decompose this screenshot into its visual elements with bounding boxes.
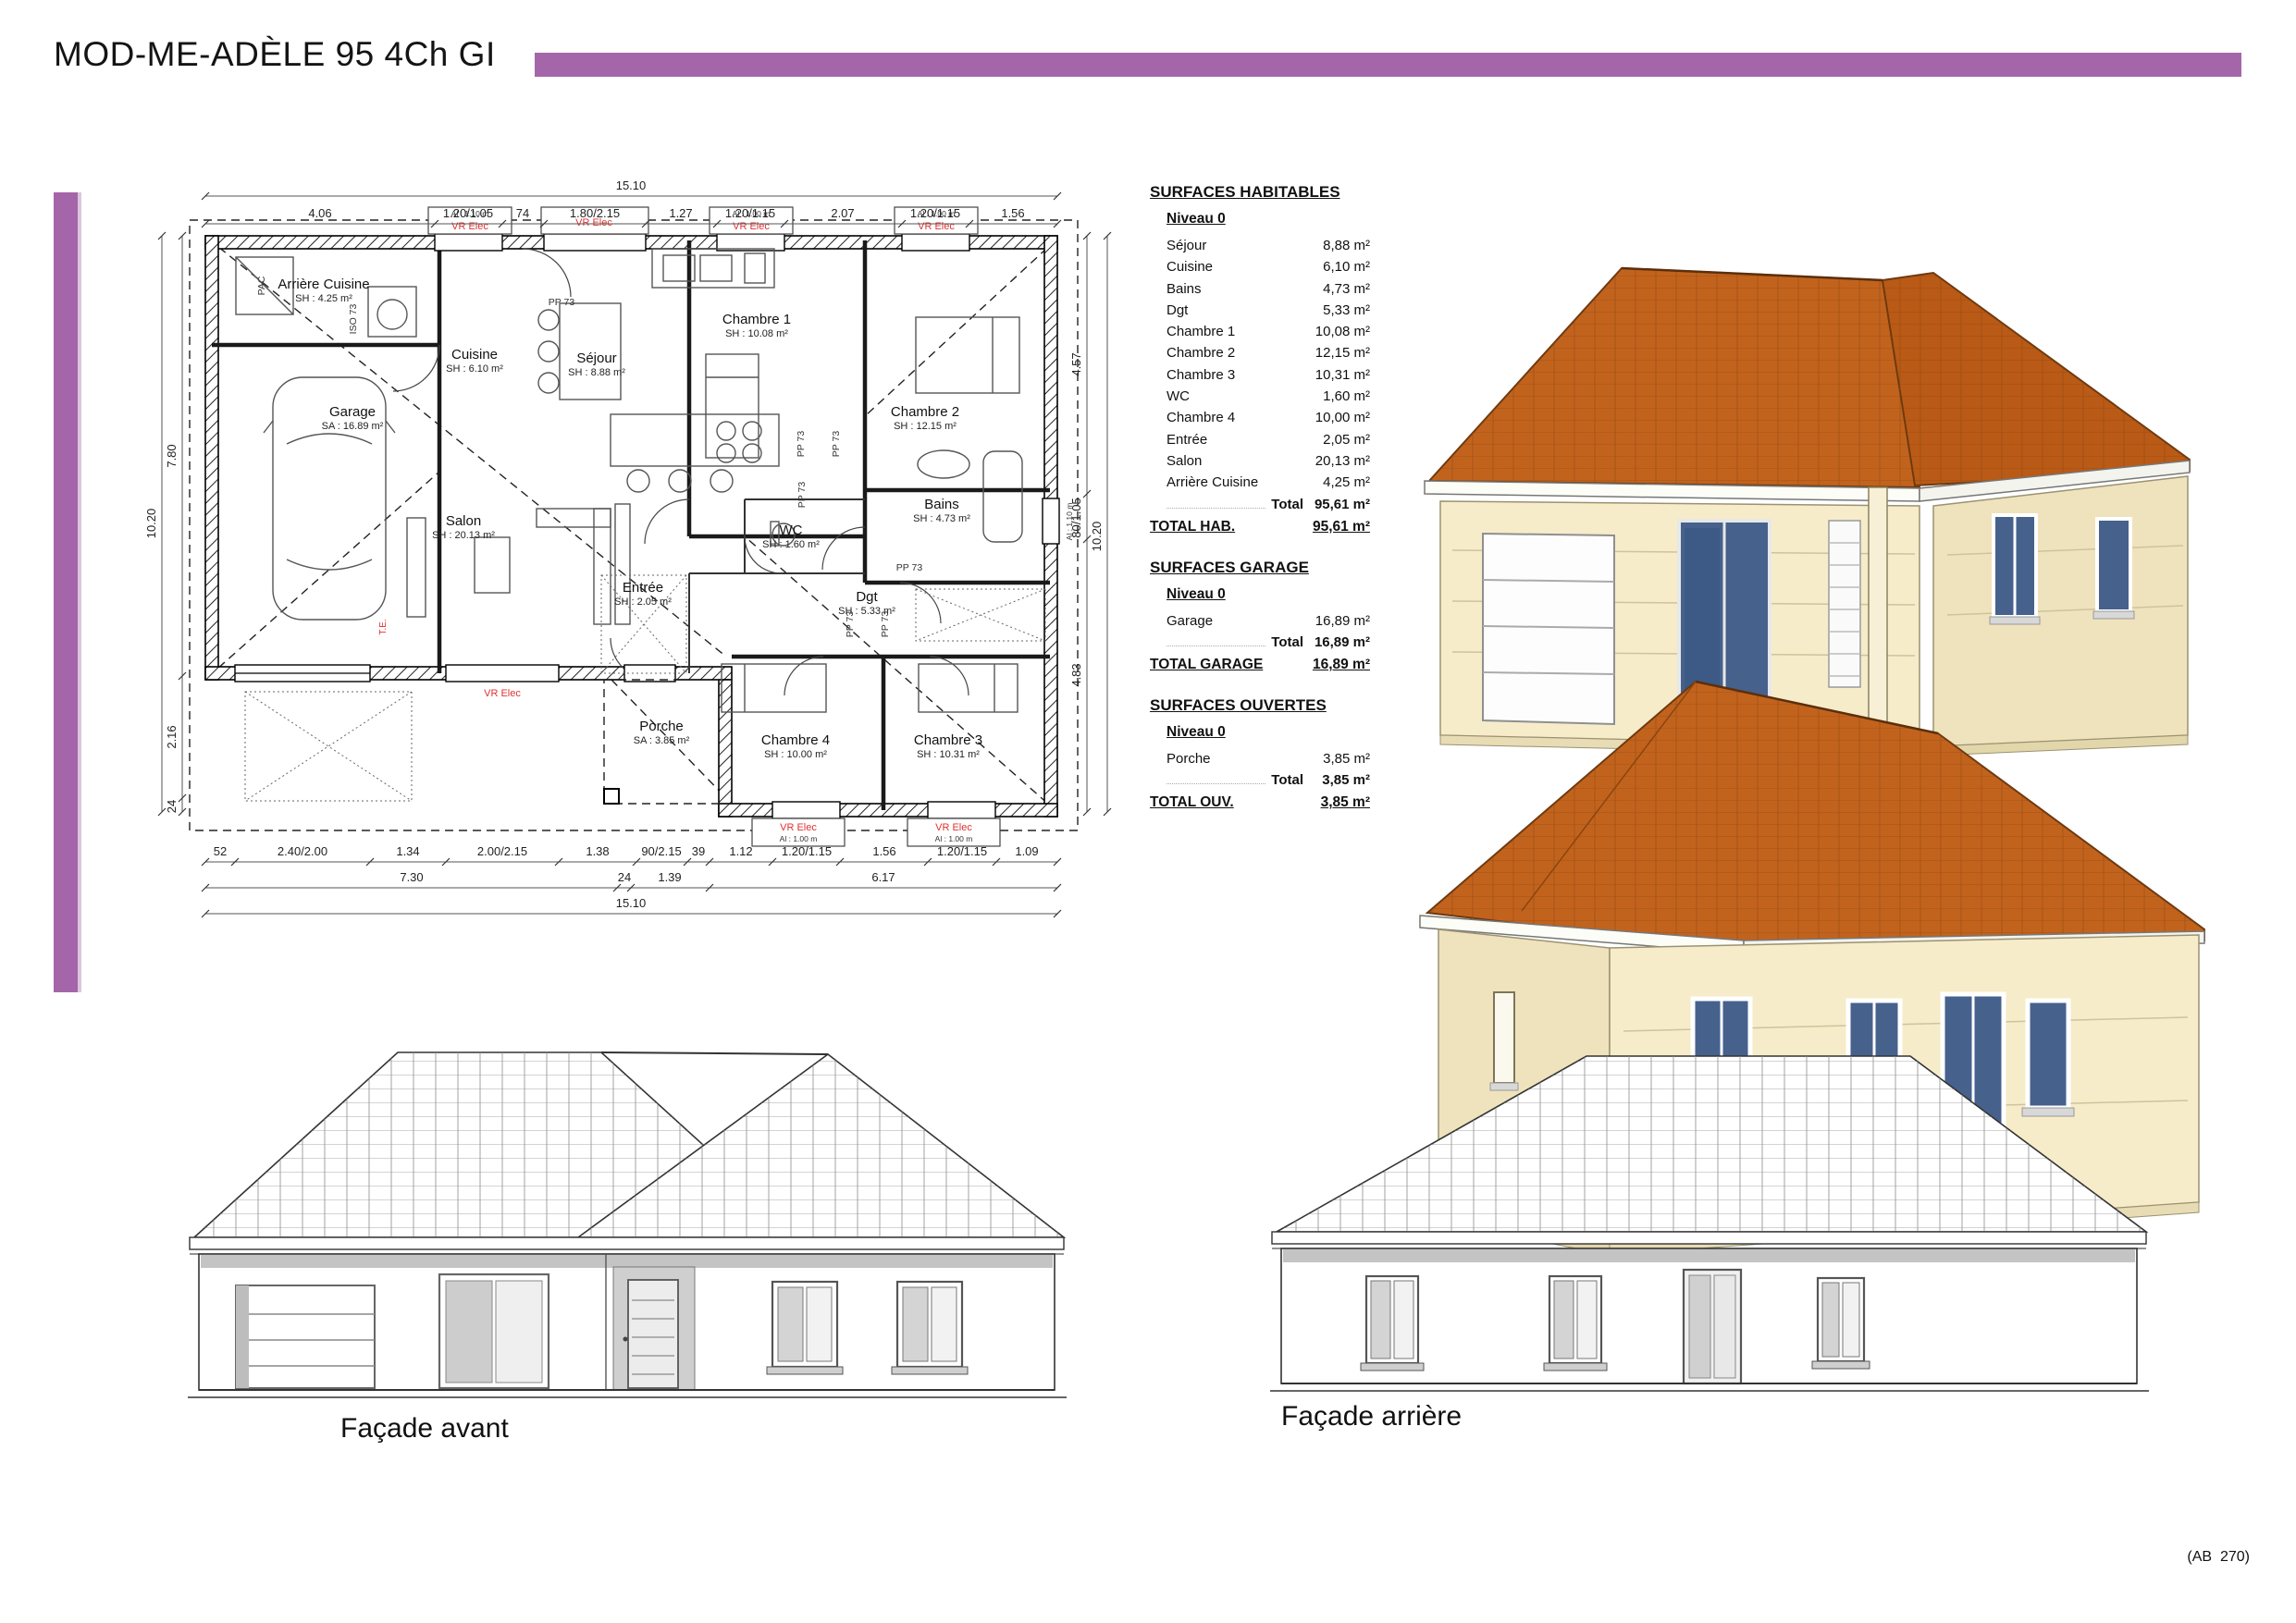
table-row: Arrière Cuisine4,25 m² [1167, 472, 1370, 493]
room-area: SH : 4.73 m² [913, 513, 970, 524]
room-name: Entrée [623, 580, 663, 596]
room-name: WC [780, 523, 803, 538]
row-value: 4,73 m² [1323, 278, 1370, 300]
row-value: 8,88 m² [1323, 235, 1370, 256]
svg-text:1.09: 1.09 [1015, 844, 1038, 858]
facade-front-label: Façade avant [340, 1413, 509, 1445]
svg-text:90/2.15: 90/2.15 [641, 844, 681, 858]
room-name: Chambre 2 [891, 404, 959, 420]
row-value: 12,15 m² [1315, 342, 1370, 363]
svg-text:4.06: 4.06 [308, 206, 331, 220]
svg-text:2.00/2.15: 2.00/2.15 [477, 844, 527, 858]
svg-text:2.16: 2.16 [165, 725, 179, 748]
row-value: 16,89 m² [1315, 610, 1370, 632]
svg-text:1.38: 1.38 [586, 844, 609, 858]
grand-label: TOTAL HAB. [1150, 515, 1235, 538]
row-value: 1,60 m² [1323, 386, 1370, 407]
svg-text:15.10: 15.10 [616, 178, 647, 192]
row-value: 10,00 m² [1315, 407, 1370, 428]
facade-rear-drawing [1263, 1034, 2188, 1404]
svg-text:4.57: 4.57 [1069, 352, 1083, 375]
svg-text:6.17: 6.17 [871, 870, 895, 884]
room-area: SH : 6.10 m² [446, 363, 503, 375]
table-row: Porche3,85 m² [1167, 748, 1370, 769]
pp73-label: PP 73 [796, 482, 808, 509]
base [188, 1390, 1067, 1397]
row-value: 20,13 m² [1315, 450, 1370, 472]
total-value: 95,61 m² [1303, 494, 1370, 515]
room-name: Chambre 3 [914, 732, 982, 748]
table-row: Chambre 110,08 m² [1167, 321, 1370, 342]
row-value: 4,25 m² [1323, 472, 1370, 493]
row-label: Cuisine [1167, 256, 1213, 277]
row-label: Salon [1167, 450, 1202, 472]
table-grand-row: TOTAL OUV. 3,85 m² [1150, 791, 1370, 814]
vr-elec-label: VR Elec [484, 688, 521, 699]
svg-text:10.20: 10.20 [144, 509, 158, 539]
table-level: Niveau 0 [1167, 586, 1370, 603]
floor-plan-drawing: Al : 1.10 m VR Elec VR Elec Al : 1.00 m … [134, 139, 1161, 925]
pp73-label: PP 73 [896, 562, 923, 573]
pp73-label: PP 73 [796, 431, 807, 458]
room-name: Garage [329, 404, 376, 420]
roof [190, 1052, 1064, 1254]
plan-sheet: MOD-ME-ADÈLE 95 4Ch GI [0, 0, 2296, 1623]
title-accent-bar [535, 53, 2241, 77]
svg-text:74: 74 [516, 206, 529, 220]
row-label: Arrière Cuisine [1167, 472, 1258, 493]
surfaces-ouvertes-table: SURFACES OUVERTES Niveau 0 Porche3,85 m²… [1150, 696, 1370, 814]
svg-text:1.56: 1.56 [872, 844, 895, 858]
room-area: SH : 10.08 m² [725, 328, 788, 339]
total-label: Total [1271, 632, 1303, 653]
grand-value: 3,85 m² [1321, 791, 1370, 814]
facade-front-drawing [180, 1034, 1105, 1404]
surface-tables: SURFACES HABITABLES Niveau 0 Séjour8,88 … [1150, 183, 1370, 834]
table-row: Chambre 410,00 m² [1167, 407, 1370, 428]
pp73-label: PP 73 [831, 431, 842, 458]
sheet-reference: (AB 270) [2187, 1549, 2250, 1566]
table-title: SURFACES OUVERTES [1150, 696, 1370, 715]
base [1270, 1383, 2149, 1391]
row-label: Séjour [1167, 235, 1206, 256]
table-rows: Garage16,89 m² [1150, 610, 1370, 632]
table-rows: Porche3,85 m² [1150, 748, 1370, 769]
svg-text:1.20/1.15: 1.20/1.15 [725, 206, 775, 220]
svg-text:39: 39 [692, 844, 705, 858]
sliding-door [439, 1274, 549, 1388]
table-level: Niveau 0 [1167, 724, 1370, 741]
vr-elec-label: VR Elec [780, 822, 817, 833]
row-label: Porche [1167, 748, 1211, 769]
vr-elec-label: VR Elec [451, 221, 488, 232]
row-value: 6,10 m² [1323, 256, 1370, 277]
table-row: Chambre 212,15 m² [1167, 342, 1370, 363]
row-label: WC [1167, 386, 1190, 407]
facade-rear-label: Façade arrière [1281, 1401, 1462, 1432]
table-row: Séjour8,88 m² [1167, 235, 1370, 256]
table-total-row: Total 95,61 m² [1150, 494, 1370, 515]
left-accent-bar [54, 192, 81, 992]
svg-text:1.39: 1.39 [658, 870, 681, 884]
roof [1425, 268, 2190, 501]
room-name: Dgt [856, 589, 878, 605]
svg-text:52: 52 [214, 844, 227, 858]
svg-text:15.10: 15.10 [616, 896, 647, 910]
table-title: SURFACES GARAGE [1150, 559, 1370, 577]
surfaces-garage-table: SURFACES GARAGE Niveau 0 Garage16,89 m² … [1150, 559, 1370, 676]
total-value: 16,89 m² [1303, 632, 1370, 653]
row-label: Chambre 3 [1167, 364, 1235, 386]
room-name: Porche [639, 719, 684, 734]
svg-text:1.56: 1.56 [1001, 206, 1024, 220]
row-label: Chambre 4 [1167, 407, 1235, 428]
exterior-walls [205, 236, 1057, 817]
entry-door [623, 1280, 679, 1388]
room-name: Salon [446, 513, 481, 529]
surfaces-habitables-table: SURFACES HABITABLES Niveau 0 Séjour8,88 … [1150, 183, 1370, 538]
table-row: Cuisine6,10 m² [1167, 256, 1370, 277]
table-grand-row: TOTAL HAB. 95,61 m² [1150, 515, 1370, 538]
grand-label: TOTAL GARAGE [1150, 653, 1263, 676]
row-value: 5,33 m² [1323, 300, 1370, 321]
perspective-front-view [1401, 180, 2280, 578]
svg-text:80/1.05: 80/1.05 [1069, 498, 1083, 537]
total-value: 3,85 m² [1303, 769, 1370, 791]
row-label: Entrée [1167, 429, 1207, 450]
table-row: Chambre 310,31 m² [1167, 364, 1370, 386]
table-title: SURFACES HABITABLES [1150, 183, 1370, 202]
svg-text:4.83: 4.83 [1069, 663, 1083, 686]
room-area: SH : 10.31 m² [917, 749, 980, 760]
svg-text:1.80/2.15: 1.80/2.15 [570, 206, 620, 220]
room-area: SH : 10.00 m² [764, 749, 827, 760]
svg-text:1.20/1.15: 1.20/1.15 [937, 844, 987, 858]
iso73-label: ISO 73 [348, 303, 359, 334]
table-row: Salon20,13 m² [1167, 450, 1370, 472]
room-name: Chambre 4 [761, 732, 830, 748]
garage-door [236, 1285, 375, 1388]
pp73-label: PP 73 [845, 611, 856, 638]
room-area: SH : 4.25 m² [295, 293, 352, 304]
room-name: Séjour [576, 350, 616, 366]
table-level: Niveau 0 [1167, 211, 1370, 227]
room-area: SH : 2.05 m² [614, 596, 672, 608]
row-label: Chambre 2 [1167, 342, 1235, 363]
allege-label: Al : 1.00 m [780, 834, 818, 843]
svg-text:10.20: 10.20 [1090, 522, 1104, 552]
svg-text:1.12: 1.12 [729, 844, 752, 858]
table-row: Dgt5,33 m² [1167, 300, 1370, 321]
room-area: SH : 20.13 m² [432, 530, 495, 541]
svg-text:7.30: 7.30 [400, 870, 423, 884]
page-title: MOD-ME-ADÈLE 95 4Ch GI [54, 35, 496, 74]
pac-label: PAC [256, 276, 267, 295]
svg-text:2.40/2.00: 2.40/2.00 [278, 844, 327, 858]
svg-text:1.20/1.05: 1.20/1.05 [443, 206, 493, 220]
roof [1420, 682, 2204, 953]
room-name: Arrière Cuisine [278, 277, 369, 292]
table-grand-row: TOTAL GARAGE 16,89 m² [1150, 653, 1370, 676]
svg-text:24: 24 [165, 800, 179, 813]
room-area: SA : 16.89 m² [322, 421, 384, 432]
table-row: Entrée2,05 m² [1167, 429, 1370, 450]
room-area: SH : 12.15 m² [894, 421, 957, 432]
room-area: SH : 1.60 m² [762, 539, 820, 550]
dimensions-left: 10.20 7.80 2.16 24 [144, 232, 186, 816]
total-label: Total [1271, 494, 1303, 515]
svg-text:1.20/1.15: 1.20/1.15 [782, 844, 832, 858]
pp73-label: PP 73 [880, 611, 891, 638]
table-row: WC1,60 m² [1167, 386, 1370, 407]
svg-text:1.27: 1.27 [669, 206, 692, 220]
row-value: 10,08 m² [1315, 321, 1370, 342]
grand-value: 16,89 m² [1313, 653, 1370, 676]
te-label: T.E. [378, 619, 389, 634]
table-rows: Séjour8,88 m²Cuisine6,10 m²Bains4,73 m²D… [1150, 235, 1370, 494]
room-area: SA : 3.85 m² [634, 735, 690, 746]
roof [1272, 1056, 2146, 1248]
table-row: Garage16,89 m² [1167, 610, 1370, 632]
svg-text:1.34: 1.34 [396, 844, 419, 858]
svg-text:2.07: 2.07 [831, 206, 854, 220]
plan-annotations: PP 73 PP 73 PP 73 PP 73 PP 73 PP 73 PP 7… [256, 276, 922, 637]
grand-value: 95,61 m² [1313, 515, 1370, 538]
room-name: Chambre 1 [722, 312, 791, 327]
total-label: Total [1271, 769, 1303, 791]
pp73-label: PP 73 [549, 297, 575, 308]
perspective-rear-view [1401, 596, 2280, 1040]
dimensions-right: 4.57 80/1.05 4.83 10.20 [1069, 232, 1111, 816]
grand-label: TOTAL OUV. [1150, 791, 1234, 814]
row-label: Bains [1167, 278, 1202, 300]
table-total-row: Total 16,89 m² [1150, 632, 1370, 653]
room-name: Bains [924, 497, 959, 512]
dimensions-bottom: 52 2.40/2.00 1.34 2.00/2.15 1.38 90/2.15… [202, 844, 1061, 917]
row-label: Garage [1167, 610, 1213, 632]
table-row: Bains4,73 m² [1167, 278, 1370, 300]
svg-text:7.80: 7.80 [165, 444, 179, 467]
row-value: 3,85 m² [1323, 748, 1370, 769]
room-area: SH : 8.88 m² [568, 367, 625, 378]
row-value: 10,31 m² [1315, 364, 1370, 386]
row-value: 2,05 m² [1323, 429, 1370, 450]
vr-elec-label: VR Elec [733, 221, 770, 232]
allege-label: Al : 1.00 m [935, 834, 973, 843]
svg-text:24: 24 [618, 870, 631, 884]
vr-elec-label: VR Elec [935, 822, 972, 833]
room-name: Cuisine [451, 347, 498, 363]
svg-text:1.20/1.15: 1.20/1.15 [910, 206, 960, 220]
interior-partitions [212, 240, 1050, 810]
row-label: Dgt [1167, 300, 1188, 321]
bottom-openings: VR Elec VR Elec Al : 1.00 m VR Elec Al :… [235, 498, 1074, 846]
vr-elec-label: VR Elec [918, 221, 955, 232]
table-total-row: Total 3,85 m² [1150, 769, 1370, 791]
row-label: Chambre 1 [1167, 321, 1235, 342]
